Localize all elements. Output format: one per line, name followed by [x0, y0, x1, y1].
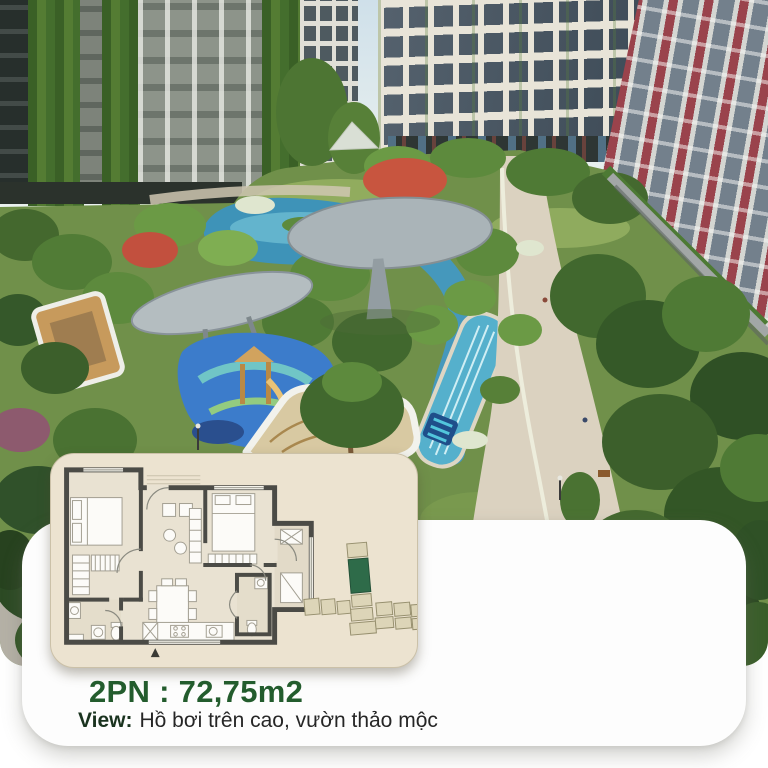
site-minimap: [299, 538, 417, 639]
entrance-marker: [151, 648, 160, 657]
marketing-flyer: 2PN : 72,75m2 View:Hồ bơi trên cao, vườn…: [0, 0, 768, 768]
floorplan-diagram: [51, 454, 417, 667]
floorplan-panel: [50, 453, 418, 668]
highlighted-unit: [348, 558, 371, 593]
